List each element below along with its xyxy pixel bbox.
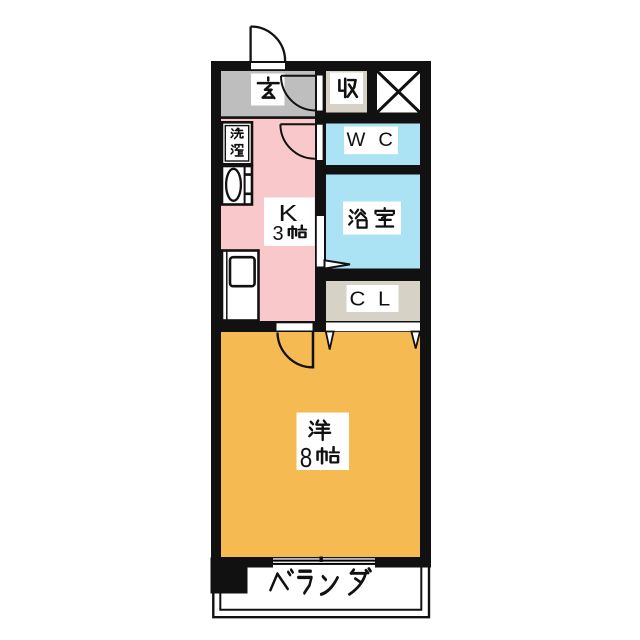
svg-text:C L: C L [350, 289, 394, 311]
svg-text:W C: W C [347, 130, 397, 151]
svg-text:3: 3 [272, 223, 283, 245]
svg-text:8: 8 [300, 442, 313, 473]
